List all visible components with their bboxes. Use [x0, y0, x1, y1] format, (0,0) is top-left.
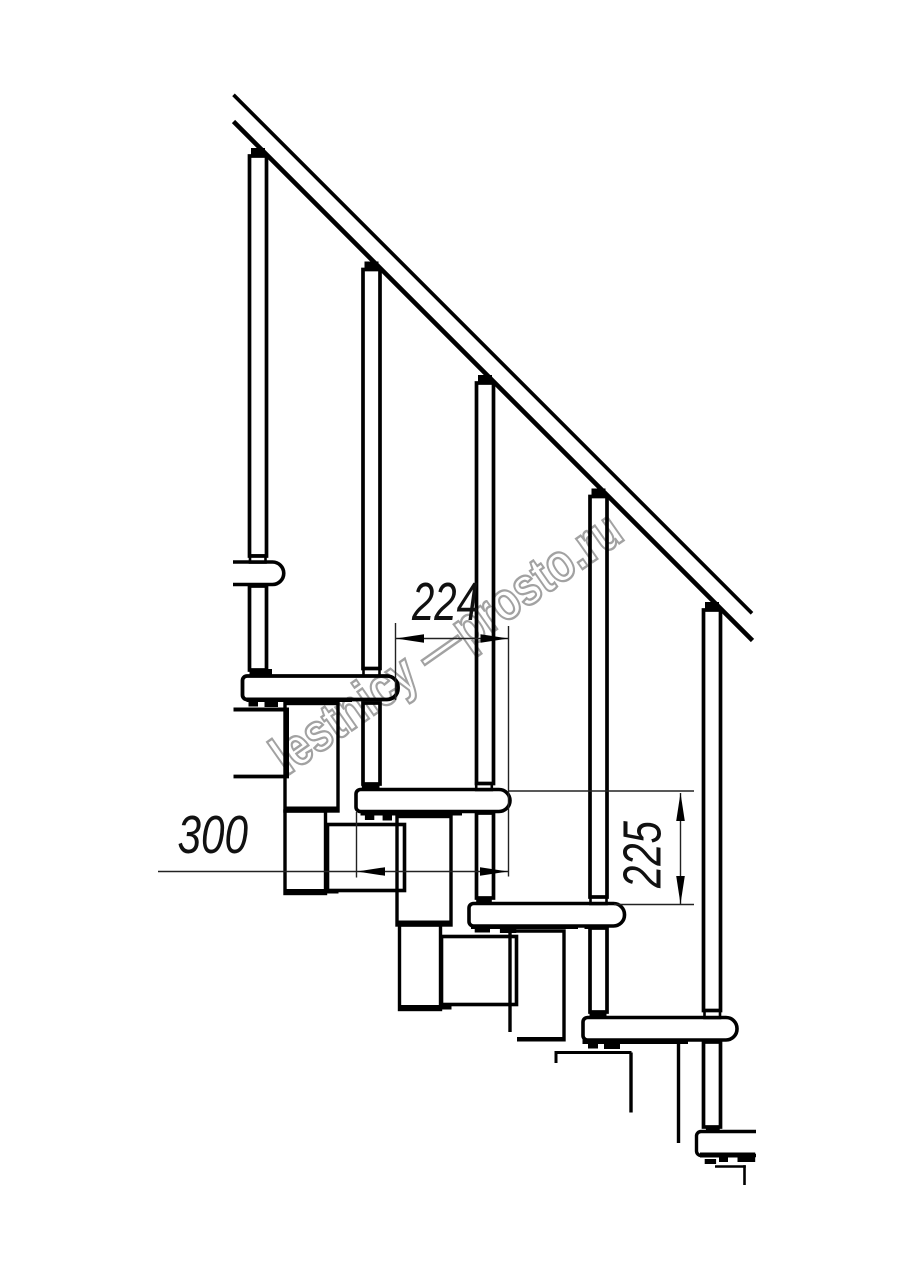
svg-text:300: 300	[178, 805, 249, 865]
svg-text:224: 224	[411, 572, 479, 632]
svg-text:225: 225	[613, 820, 673, 888]
